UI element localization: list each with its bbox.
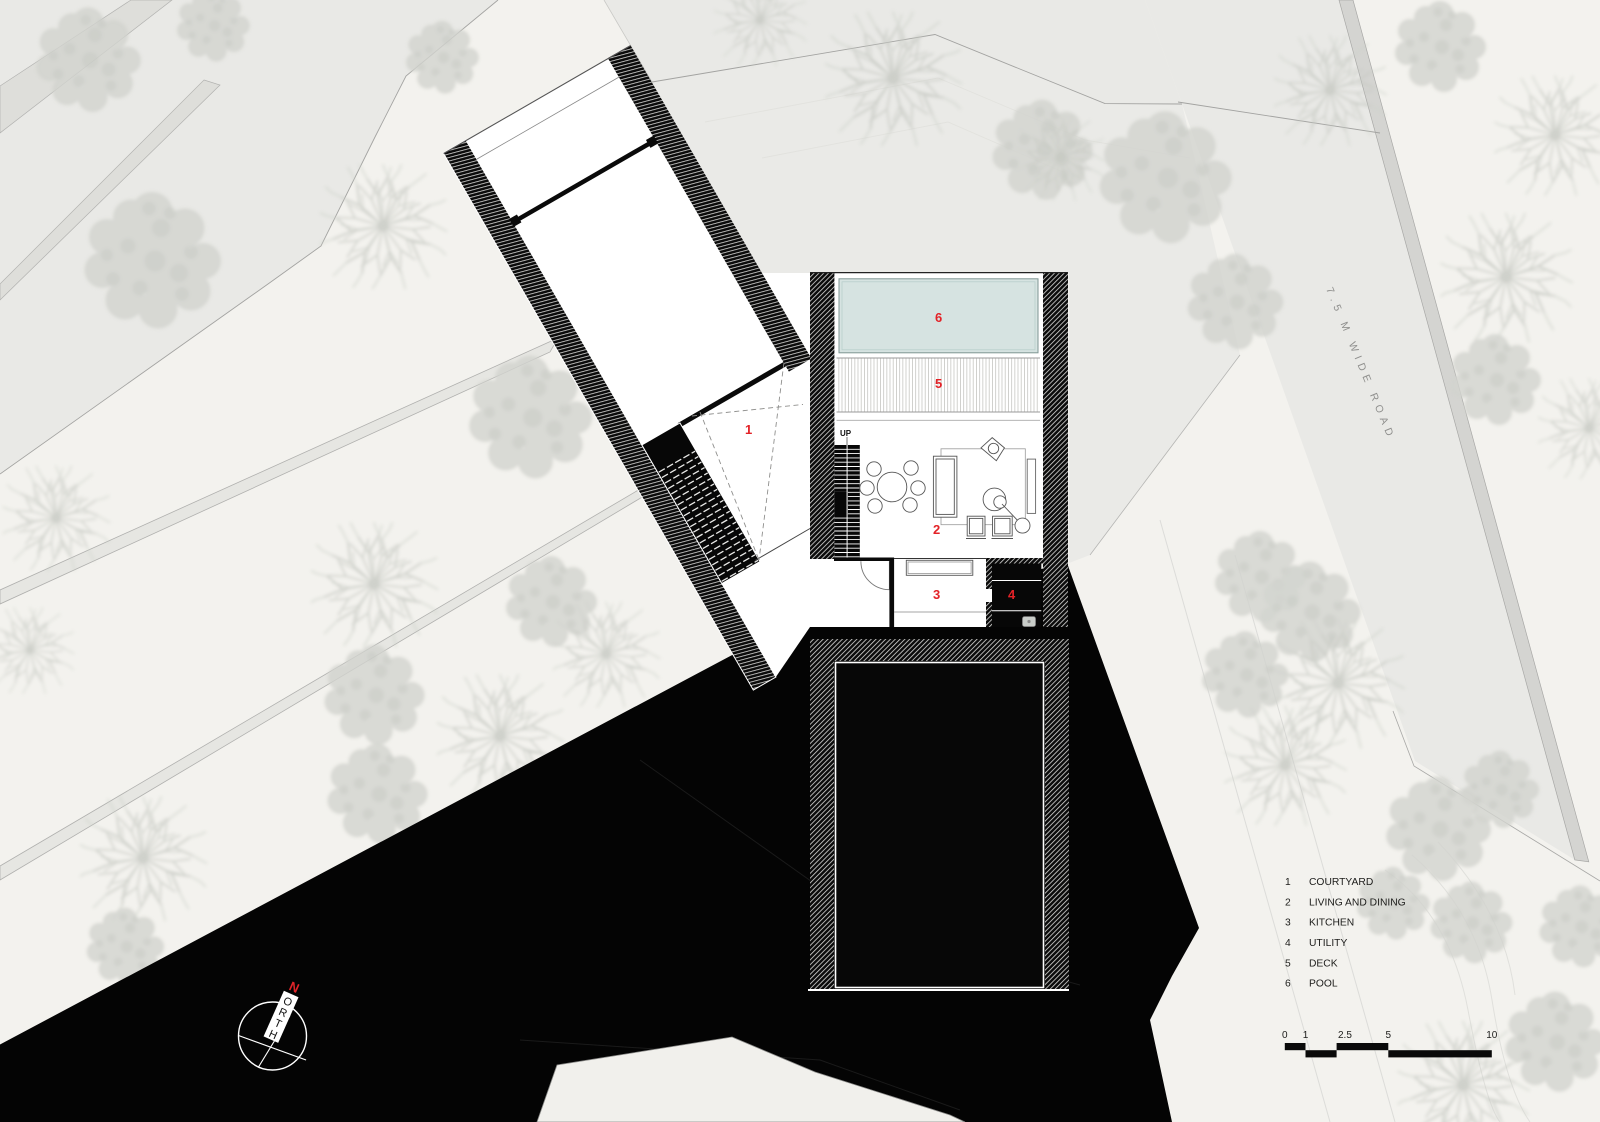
svg-text:4: 4	[1008, 587, 1016, 602]
svg-text:1: 1	[1303, 1030, 1309, 1041]
svg-text:6: 6	[935, 310, 942, 325]
svg-text:KITCHEN: KITCHEN	[1309, 918, 1354, 929]
svg-text:DECK: DECK	[1309, 958, 1338, 969]
svg-text:4: 4	[1285, 938, 1291, 949]
svg-text:2: 2	[933, 522, 940, 537]
svg-text:5: 5	[1386, 1030, 1392, 1041]
svg-text:3: 3	[933, 587, 940, 602]
svg-text:3: 3	[1285, 918, 1291, 929]
svg-text:1: 1	[745, 422, 752, 437]
svg-text:UTILITY: UTILITY	[1309, 938, 1347, 949]
svg-text:10: 10	[1486, 1030, 1498, 1041]
svg-text:2.5: 2.5	[1338, 1030, 1352, 1041]
svg-text:0: 0	[1282, 1030, 1288, 1041]
svg-text:COURTYARD: COURTYARD	[1309, 877, 1373, 888]
svg-text:5: 5	[1285, 958, 1291, 969]
svg-text:5: 5	[935, 376, 942, 391]
svg-text:1: 1	[1285, 877, 1291, 888]
svg-text:6: 6	[1285, 979, 1291, 990]
svg-text:LIVING AND DINING: LIVING AND DINING	[1309, 897, 1406, 908]
svg-text:POOL: POOL	[1309, 979, 1338, 990]
svg-text:UP: UP	[840, 429, 852, 438]
svg-text:2: 2	[1285, 897, 1291, 908]
